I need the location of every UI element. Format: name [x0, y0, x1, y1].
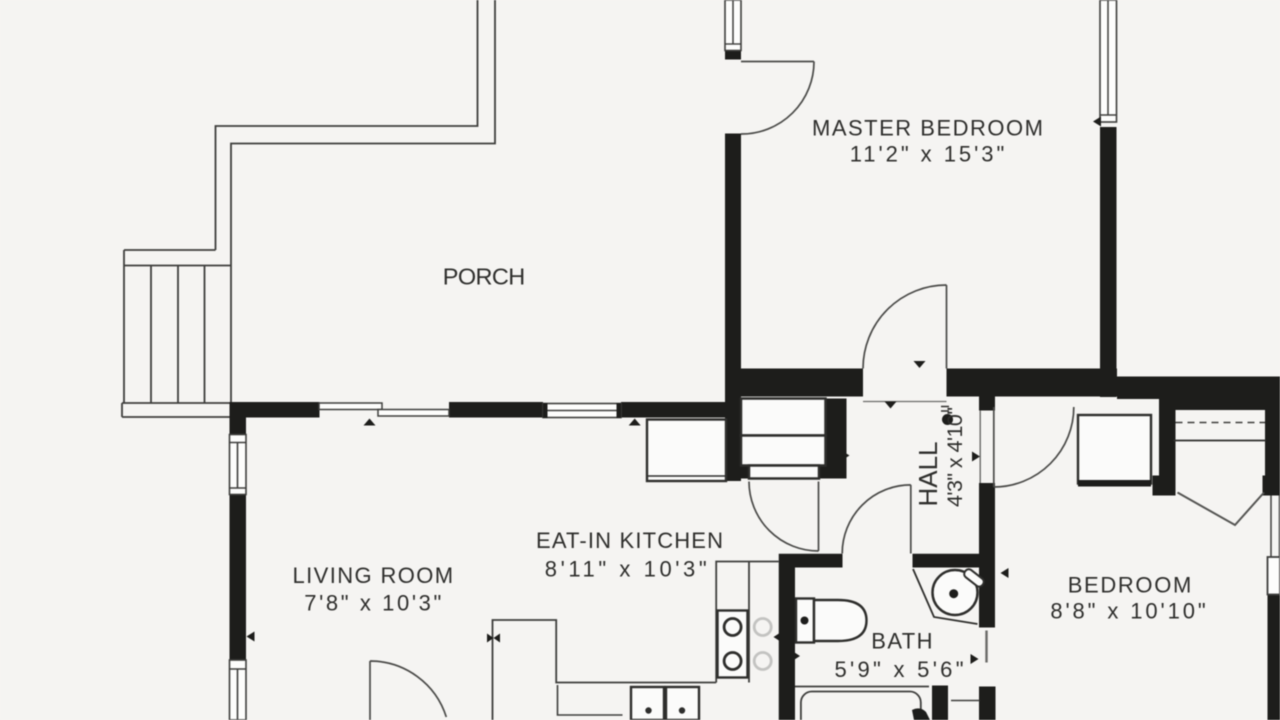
svg-text:EAT-IN KITCHEN: EAT-IN KITCHEN	[536, 528, 723, 553]
svg-text:HALL: HALL	[913, 441, 943, 506]
svg-text:LIVING ROOM: LIVING ROOM	[293, 563, 454, 588]
svg-text:PORCH: PORCH	[443, 264, 526, 290]
svg-text:BEDROOM: BEDROOM	[1068, 573, 1192, 598]
svg-text:4'3" x 4'10": 4'3" x 4'10"	[943, 407, 967, 507]
svg-text:8'11" x 10'3": 8'11" x 10'3"	[545, 557, 707, 582]
svg-text:11'2" x 15'3": 11'2" x 15'3"	[850, 142, 1005, 167]
svg-text:5'9" x 5'6": 5'9" x 5'6"	[835, 657, 964, 682]
svg-text:BATH: BATH	[871, 629, 932, 654]
